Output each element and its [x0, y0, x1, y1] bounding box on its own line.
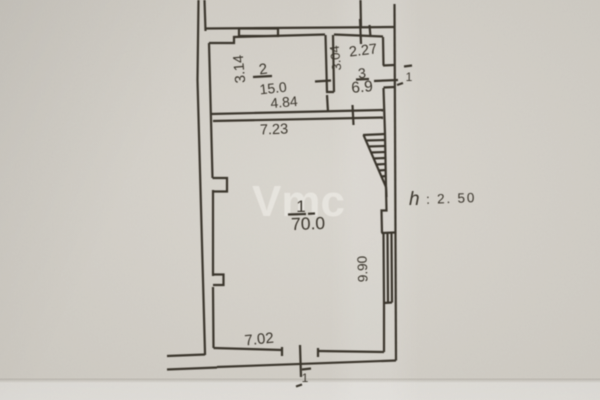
svg-text:1: 1	[406, 70, 413, 84]
svg-text:9.90: 9.90	[355, 256, 371, 283]
svg-text:: 2. 50: : 2. 50	[426, 190, 477, 207]
svg-text:6.9: 6.9	[351, 78, 374, 97]
svg-text:7.23: 7.23	[260, 122, 289, 139]
svg-text:3.04: 3.04	[327, 45, 345, 72]
svg-text:4.84: 4.84	[270, 93, 299, 111]
svg-text:h: h	[409, 189, 420, 210]
svg-text:1: 1	[302, 371, 309, 385]
svg-text:70.0: 70.0	[291, 213, 326, 234]
svg-text:7.02: 7.02	[244, 330, 275, 350]
svg-text:3.14: 3.14	[231, 54, 249, 84]
svg-text:2.27: 2.27	[348, 41, 378, 60]
